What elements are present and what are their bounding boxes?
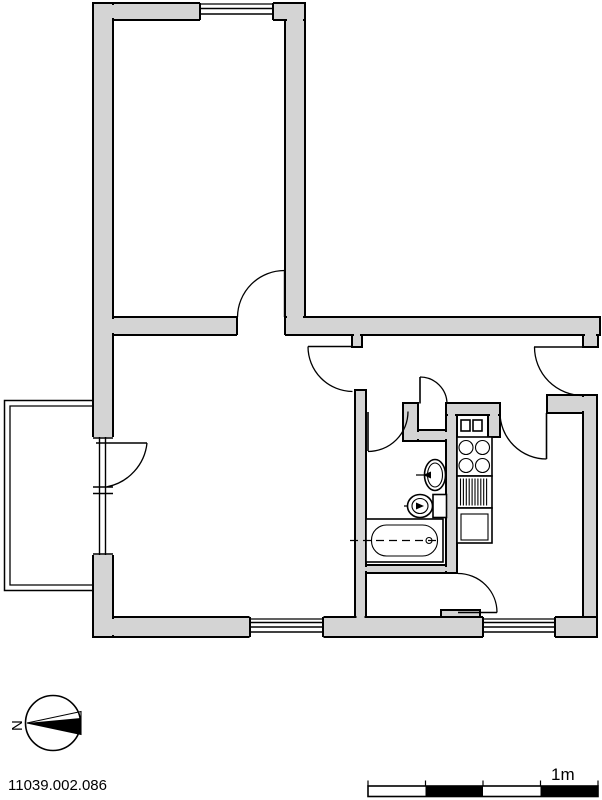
pier-bath-door-vertical — [403, 403, 418, 441]
shaft-niche-door — [420, 377, 447, 404]
wall-right-exterior — [583, 395, 597, 637]
scale-bar-segment-black — [541, 786, 599, 797]
washbasin — [416, 460, 446, 491]
wall-bath-south — [366, 565, 446, 573]
floor-plan-canvas: N 1m 11039.002.086 — [0, 0, 602, 800]
wall-shaft-block-right — [488, 415, 500, 437]
wall-wing-north — [113, 317, 600, 335]
scale-bar-segment-black — [426, 786, 484, 797]
toilet — [404, 495, 447, 518]
scale-bar: 1m — [368, 765, 598, 797]
ventilation-shaft-icon — [473, 420, 482, 431]
wall-bedroom-right — [285, 20, 305, 317]
ventilation-shaft-icon — [461, 420, 470, 431]
stove — [457, 437, 492, 476]
bedroom-door — [237, 270, 285, 337]
scale-unit-label: 1m — [551, 765, 575, 784]
window-balcony-door — [91, 437, 115, 555]
entrance-door — [534, 347, 583, 396]
kitchen-door — [500, 413, 547, 460]
walls — [93, 3, 600, 637]
window-kitchen — [483, 615, 555, 639]
pantry-door — [458, 574, 497, 613]
sink-unit — [457, 508, 492, 543]
wall-kitchen-door — [547, 395, 583, 413]
kitchen-fixtures — [457, 420, 492, 543]
drawing-number: 11039.002.086 — [8, 777, 107, 794]
counter-drainer — [457, 476, 492, 508]
north-label: N — [9, 720, 26, 731]
window-living-room — [250, 615, 324, 639]
wall-bath-west — [355, 390, 366, 617]
window-bedroom — [200, 1, 273, 22]
living-room-door — [308, 347, 353, 392]
floor-plan-page: N 1m 11039.002.086 — [0, 0, 602, 800]
north-arrow: N — [9, 696, 81, 751]
pier-bath-door-arm — [418, 430, 446, 441]
balcony — [5, 401, 94, 591]
